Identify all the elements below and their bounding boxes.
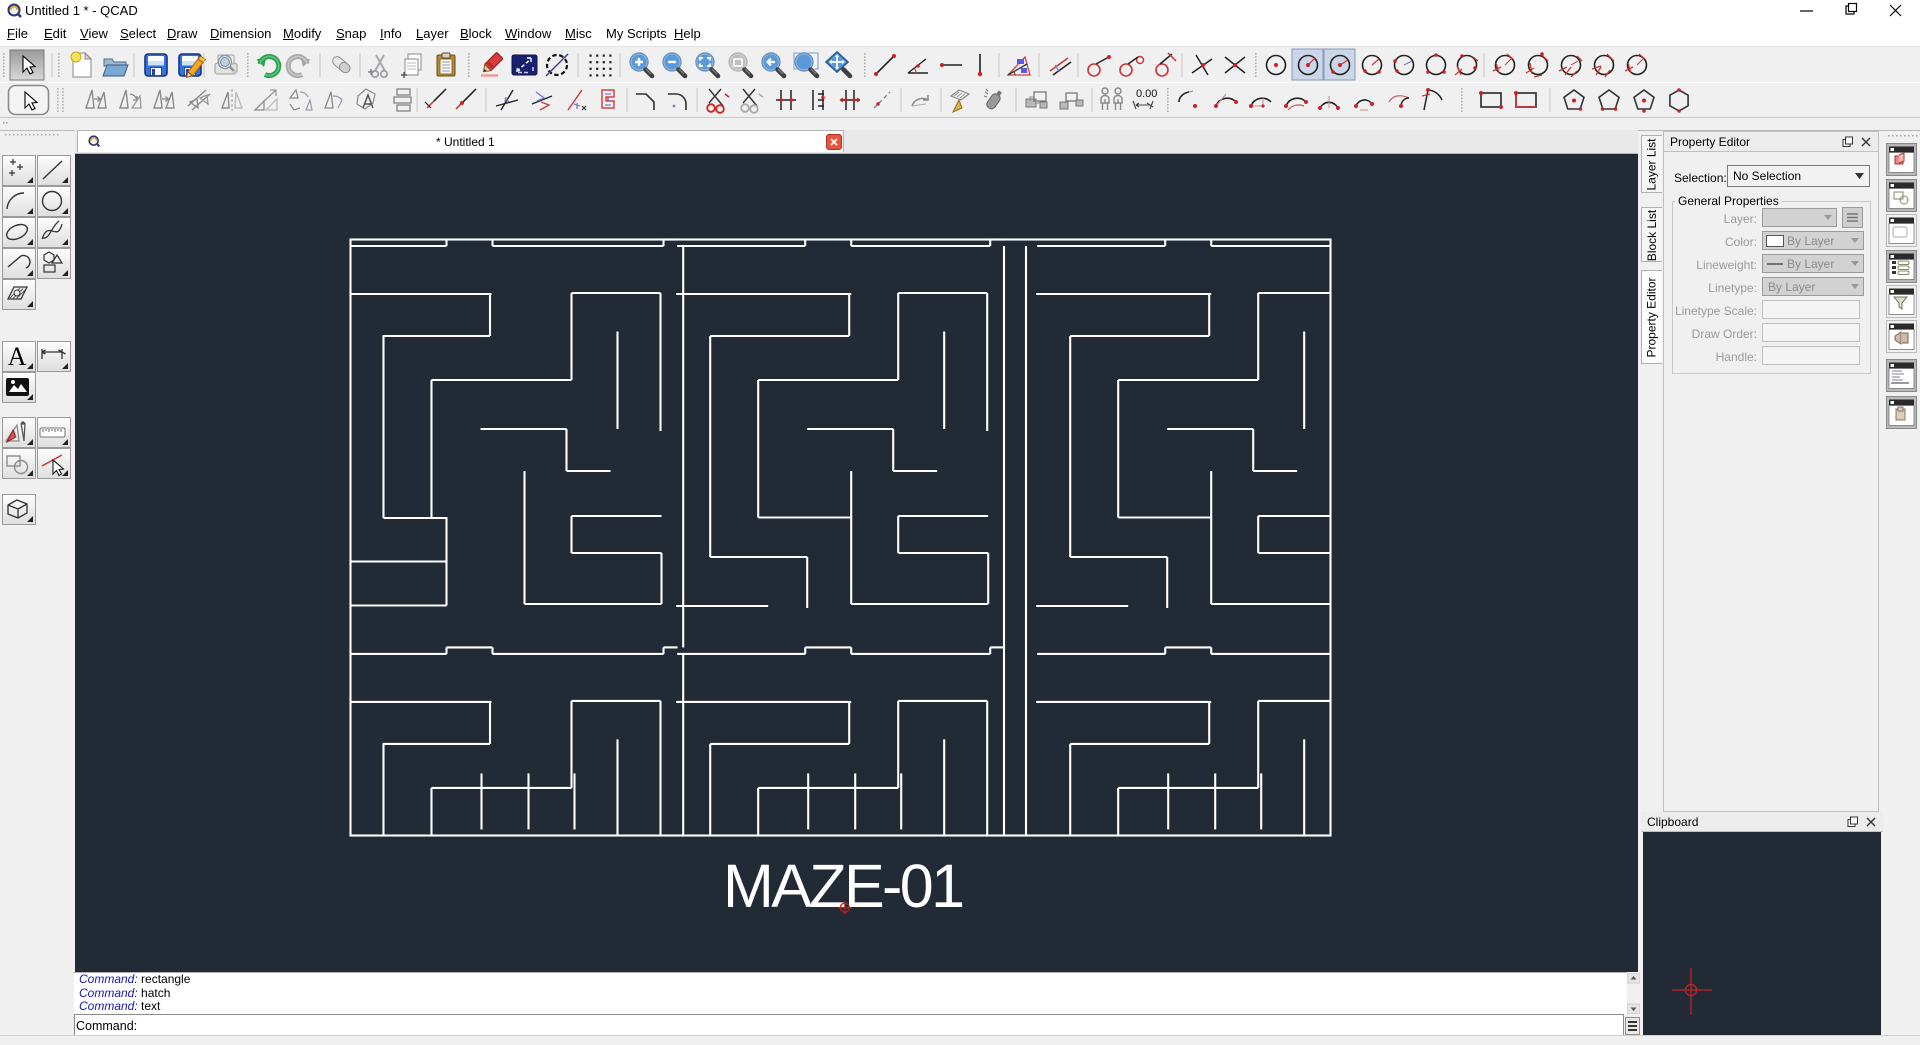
svg-text:0.00: 0.00 (1136, 88, 1157, 100)
svg-text:MAZE-01: MAZE-01 (723, 852, 965, 920)
svg-text:A: A (8, 342, 27, 371)
